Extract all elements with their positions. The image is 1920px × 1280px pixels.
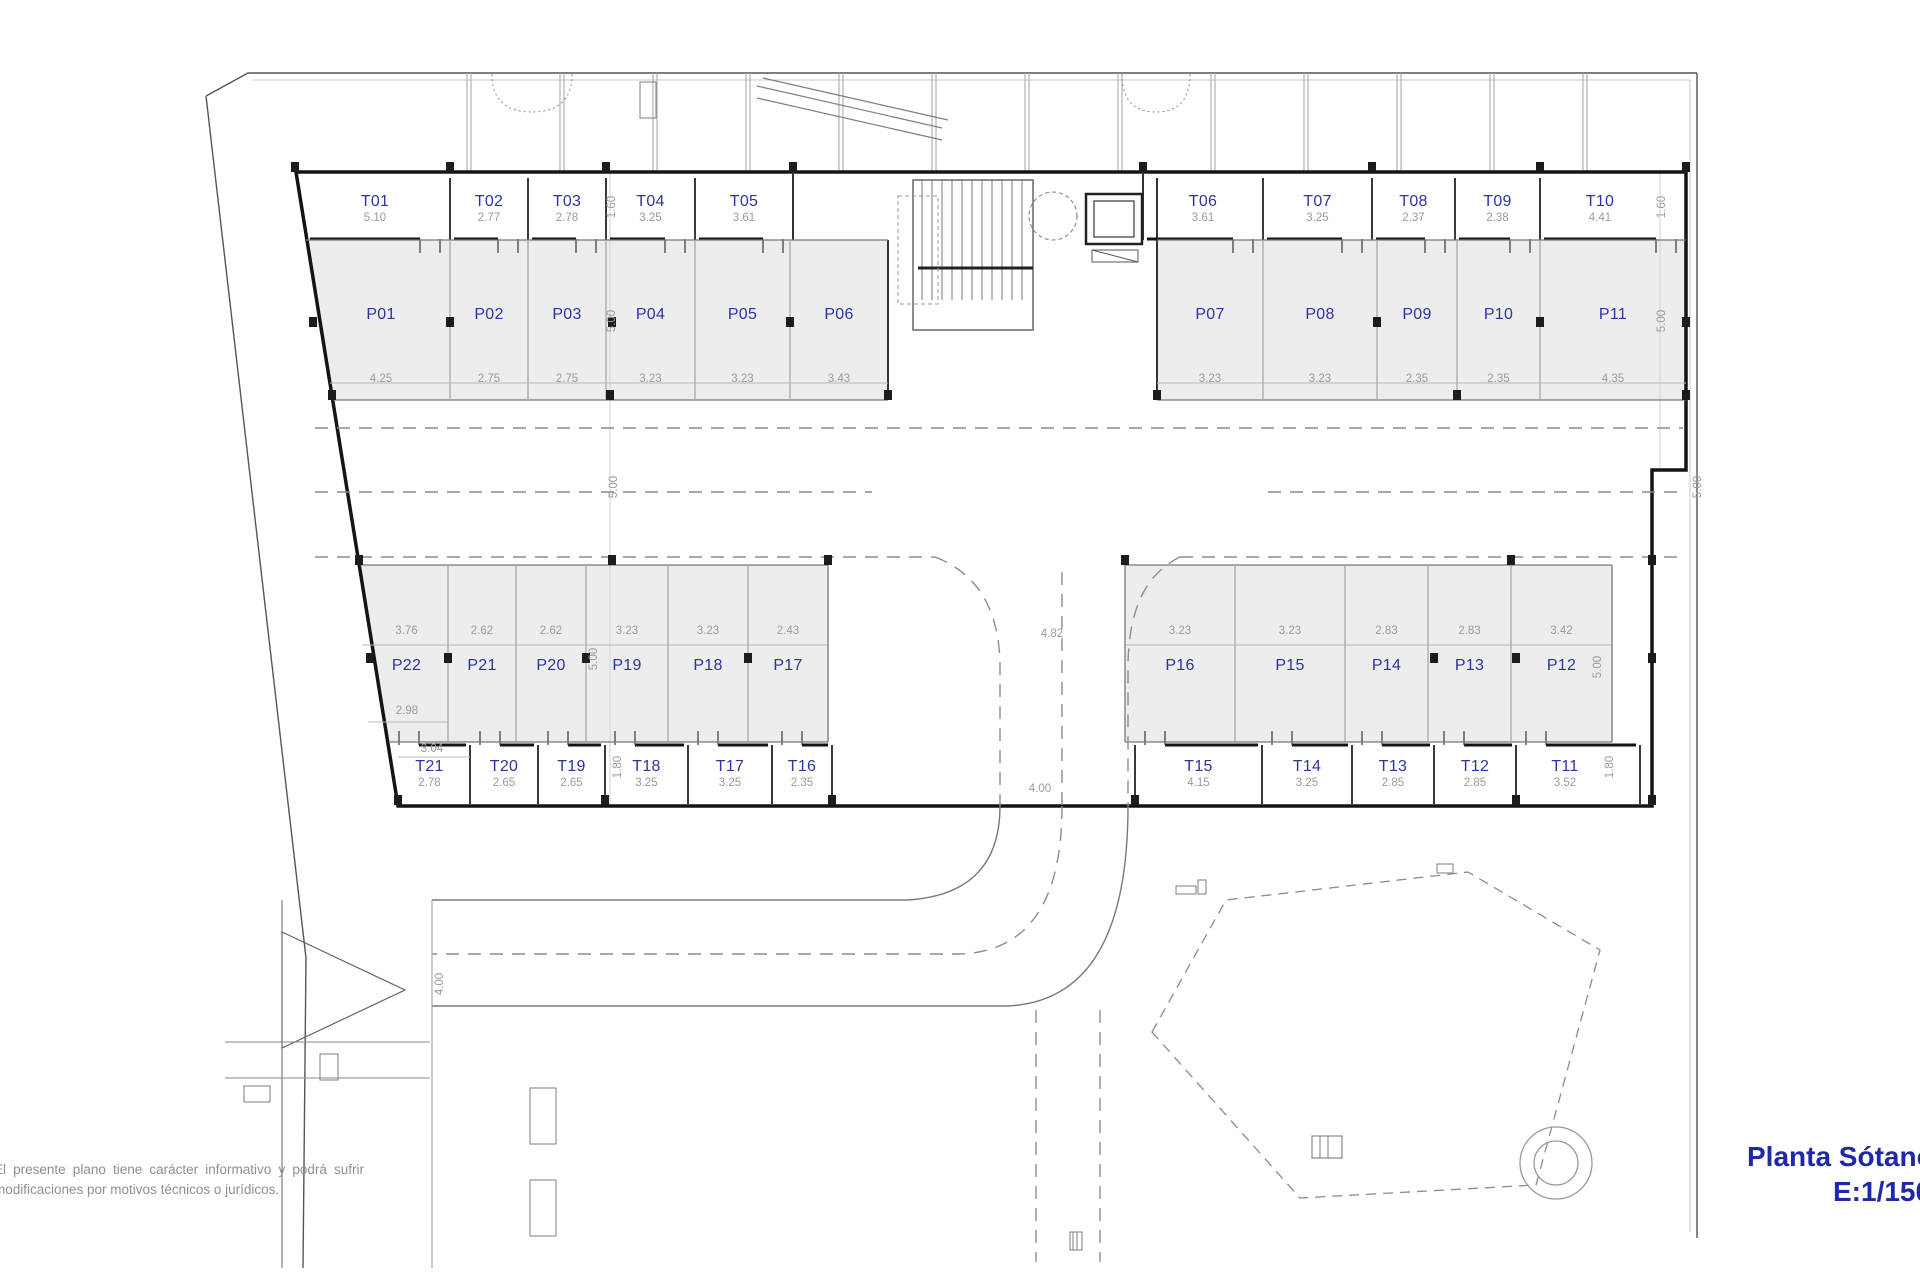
storage-unit-t07: T073.25 [1263,180,1372,238]
floor-plan-canvas: T015.10 T022.77 T032.78 T043.25 T053.61 … [0,0,1920,1280]
unit-label: P06 [790,306,888,324]
storage-unit-t09: T092.38 [1455,180,1540,238]
unit-dim: 2.35 [791,777,813,790]
unit-label: P18 [668,657,748,675]
unit-label: P20 [516,657,586,675]
dim-aisle-width: 5.00 [608,467,620,507]
parking-space-p10: P102.35 [1457,240,1540,400]
storage-unit-t15: T154.15 [1135,745,1262,803]
unit-dim: 3.76 [365,625,448,638]
storage-unit-t13: T132.85 [1352,745,1434,803]
unit-label: P16 [1125,657,1235,675]
unit-label: T03 [553,193,581,211]
unit-label: P03 [528,306,606,324]
unit-label: T15 [1184,758,1212,776]
unit-label: P01 [312,306,450,324]
dim-ramp-storage: 4.00 [1010,783,1070,795]
parking-space-p20: P202.62 [516,565,586,742]
disclaimer-line2: modificaciones por motivos técnicos o ju… [0,1180,364,1200]
unit-label: T09 [1483,193,1511,211]
unit-dim: 3.25 [635,777,657,790]
dim-ramp-parking: 4.82 [1022,628,1082,640]
unit-dim: 3.23 [1157,373,1263,386]
unit-label: T01 [361,193,389,211]
unit-label: T06 [1189,193,1217,211]
storage-unit-t17: T173.25 [688,745,772,803]
parking-space-p18: P183.23 [668,565,748,742]
unit-label: P02 [450,306,528,324]
unit-dim: 3.23 [1125,625,1235,638]
dim-storage-bottom-depth: 1.80 [1604,747,1616,787]
storage-unit-t10: T104.41 [1540,180,1660,238]
unit-dim: 2.37 [1402,212,1424,225]
parking-space-p08: P083.23 [1263,240,1377,400]
unit-dim: 3.25 [1296,777,1318,790]
unit-dim: 3.23 [695,373,790,386]
unit-dim: 3.61 [733,212,755,225]
storage-unit-t01: T015.10 [300,180,450,238]
unit-dim: 4.25 [312,373,450,386]
unit-label: P15 [1235,657,1345,675]
unit-dim: 2.77 [478,212,500,225]
unit-label: T18 [632,758,660,776]
parking-space-p14: P142.83 [1345,565,1428,742]
unit-label: T10 [1586,193,1614,211]
unit-dim: 3.23 [606,373,695,386]
unit-dim: 2.35 [1377,373,1457,386]
storage-unit-t04: T043.25 [606,180,695,238]
unit-dim: 2.65 [493,777,515,790]
disclaimer-note: El presente plano tiene carácter informa… [0,1160,364,1201]
unit-label: T21 [415,758,443,776]
parking-space-p21: P212.62 [448,565,516,742]
unit-label: T14 [1293,758,1321,776]
storage-unit-t11: T113.52 [1516,745,1614,803]
parking-space-p05: P053.23 [695,240,790,400]
storage-unit-t03: T032.78 [528,180,606,238]
unit-dim: 2.85 [1382,777,1404,790]
dim-storage-top-depth: 1.60 [1656,187,1668,227]
unit-dim: 3.25 [719,777,741,790]
unit-dim: 2.83 [1345,625,1428,638]
storage-unit-t16: T162.35 [772,745,832,803]
dim-parking-depth: 5.00 [588,639,600,679]
unit-label: T16 [788,758,816,776]
parking-space-p15: P153.23 [1235,565,1345,742]
unit-dim: 2.62 [516,625,586,638]
dim-parking-depth: 5.00 [1592,647,1604,687]
unit-dim: 3.43 [790,373,888,386]
unit-dim: 2.78 [556,212,578,225]
unit-dim: 2.85 [1464,777,1486,790]
storage-unit-t12: T122.85 [1434,745,1516,803]
dim-parking-depth: 5.00 [1656,301,1668,341]
unit-dim: 3.23 [1235,625,1345,638]
unit-label: T05 [730,193,758,211]
unit-dim: 2.43 [748,625,828,638]
unit-dim: 3.23 [586,625,668,638]
dim-p22-inner: 2.98 [377,705,437,717]
parking-space-p16: P163.23 [1125,565,1235,742]
unit-label: T19 [557,758,585,776]
unit-dim: 4.35 [1540,373,1686,386]
parking-space-p17: P172.43 [748,565,828,742]
storage-unit-t08: T082.37 [1372,180,1455,238]
parking-space-p06: P063.43 [790,240,888,400]
unit-dim: 2.78 [418,777,440,790]
unit-label: T08 [1399,193,1427,211]
unit-dim: 3.52 [1554,777,1576,790]
unit-label: T07 [1303,193,1331,211]
unit-label: T11 [1551,758,1578,776]
storage-unit-t20: T202.65 [470,745,538,803]
dim-access-width: 4.00 [434,964,446,1004]
unit-dim: 2.38 [1486,212,1508,225]
unit-dim: 2.65 [560,777,582,790]
unit-dim: 2.75 [450,373,528,386]
parking-space-p07: P073.23 [1157,240,1263,400]
unit-label: P10 [1457,306,1540,324]
dim-storage-top-depth: 1.60 [606,187,618,227]
storage-unit-t19: T192.65 [538,745,605,803]
parking-space-p02: P022.75 [450,240,528,400]
unit-label: P17 [748,657,828,675]
unit-label: P05 [695,306,790,324]
unit-dim: 3.61 [1192,212,1214,225]
unit-label: P21 [448,657,516,675]
unit-dim: 3.23 [1263,373,1377,386]
disclaimer-line1: El presente plano tiene carácter informa… [0,1160,364,1180]
dim-aisle-width: 5.00 [1692,467,1704,507]
unit-dim: 3.25 [1306,212,1328,225]
unit-label: P07 [1157,306,1263,324]
unit-label: P09 [1377,306,1457,324]
storage-unit-t02: T022.77 [450,180,528,238]
unit-label: T04 [636,193,664,211]
unit-dim: 2.75 [528,373,606,386]
unit-label: T13 [1379,758,1407,776]
storage-unit-t14: T143.25 [1262,745,1352,803]
dim-p22-outer: 3.04 [402,743,462,755]
unit-dim: 3.42 [1511,625,1612,638]
unit-dim: 4.41 [1589,212,1611,225]
unit-label: P14 [1345,657,1428,675]
dim-storage-bottom-depth: 1.80 [612,747,624,787]
plan-title: Planta Sótano [1747,1141,1920,1173]
unit-dim: 4.15 [1187,777,1209,790]
unit-label: T17 [716,758,744,776]
parking-space-p01: P014.25 [312,240,450,400]
unit-dim: 3.23 [668,625,748,638]
unit-label: T20 [490,758,518,776]
parking-space-p03: P032.75 [528,240,606,400]
unit-label: T12 [1461,758,1489,776]
parking-space-p09: P092.35 [1377,240,1457,400]
unit-dim: 2.62 [448,625,516,638]
unit-label: P04 [606,306,695,324]
unit-label: T02 [475,193,503,211]
parking-space-p13: P132.83 [1428,565,1511,742]
unit-label: P22 [365,657,448,675]
unit-dim: 5.10 [364,212,386,225]
storage-unit-t06: T063.61 [1143,180,1263,238]
plan-scale: E:1/150 [1833,1176,1920,1208]
unit-label: P08 [1263,306,1377,324]
unit-dim: 3.25 [639,212,661,225]
storage-unit-t05: T053.61 [695,180,793,238]
unit-dim: 2.83 [1428,625,1511,638]
unit-dim: 2.35 [1457,373,1540,386]
parking-space-p04: P043.23 [606,240,695,400]
dim-parking-depth: 5.00 [606,301,618,341]
unit-label: P13 [1428,657,1511,675]
